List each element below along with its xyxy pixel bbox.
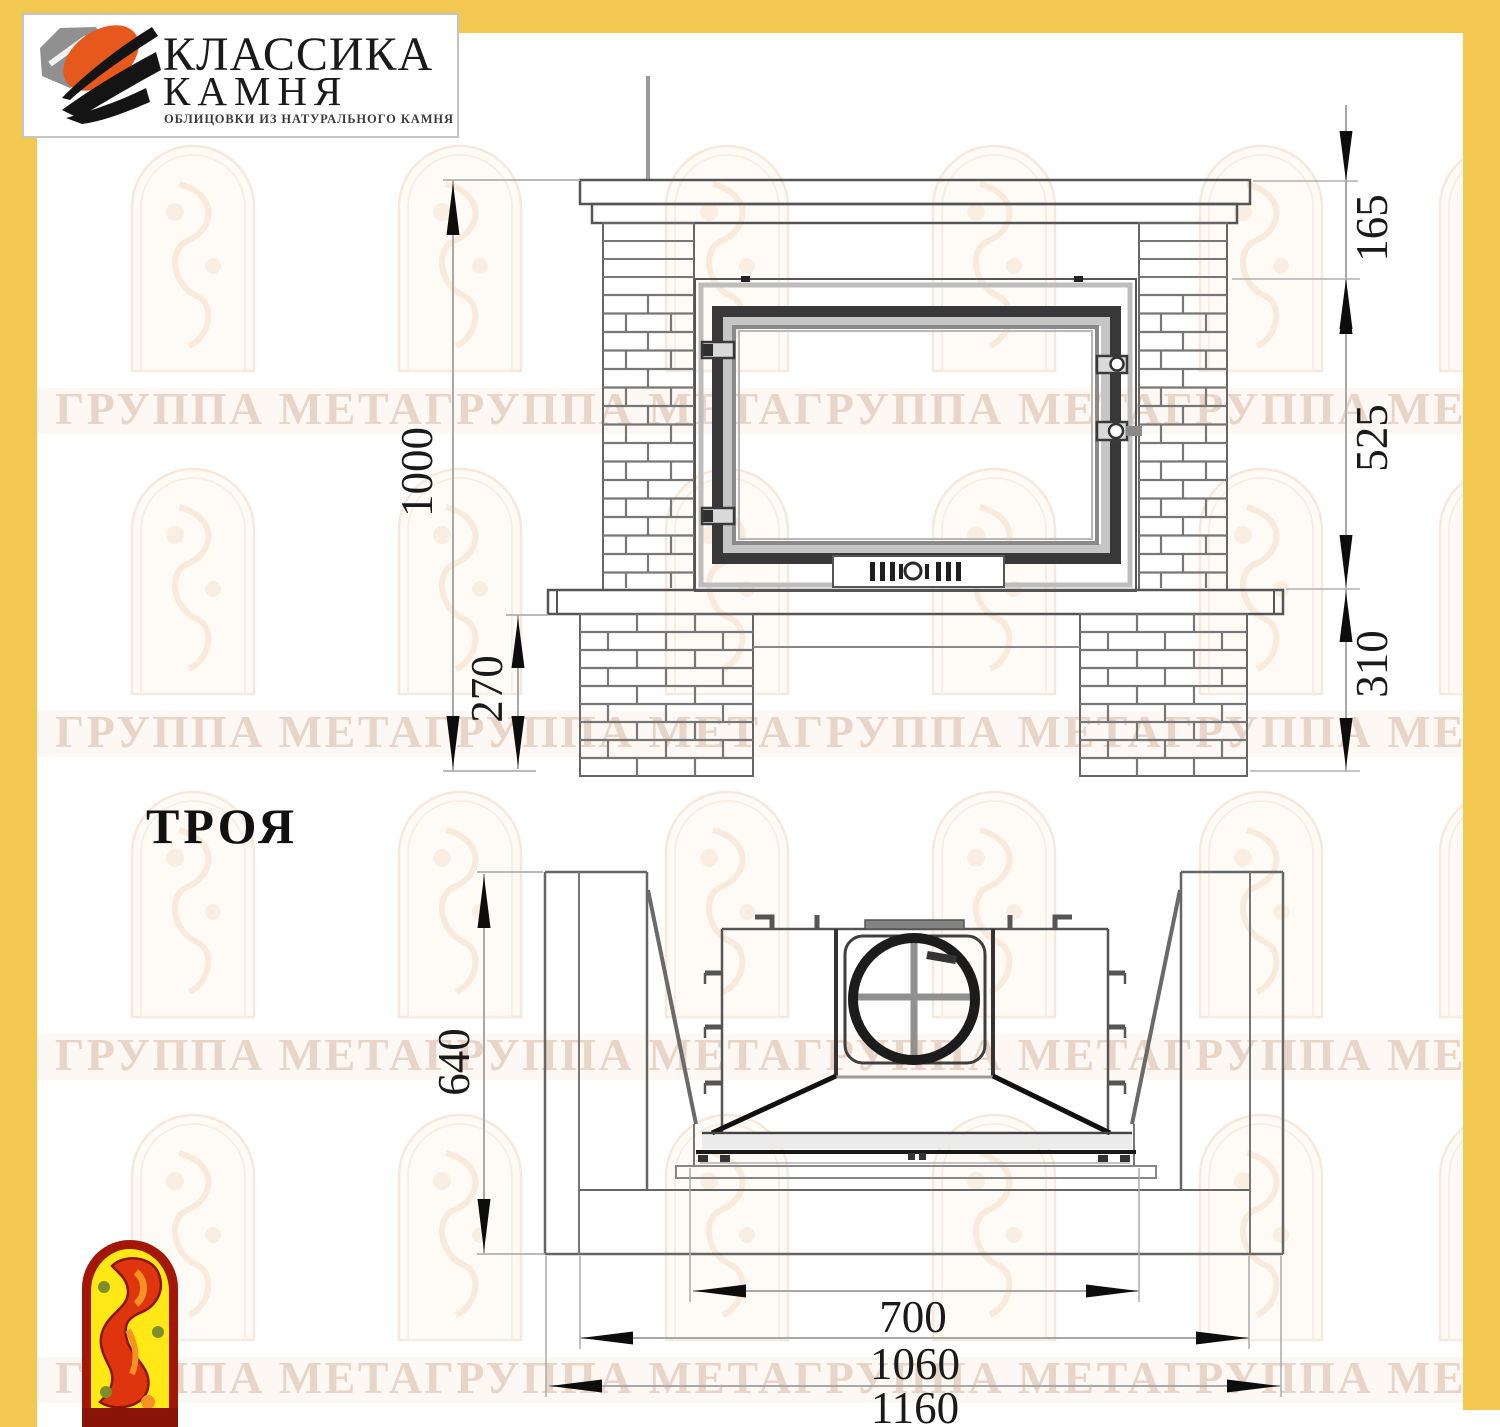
svg-text:525: 525: [1347, 404, 1397, 472]
svg-text:1060: 1060: [870, 1339, 960, 1389]
svg-text:640: 640: [429, 1028, 479, 1096]
svg-text:ТРОЯ: ТРОЯ: [146, 798, 298, 854]
svg-text:165: 165: [1347, 194, 1397, 262]
svg-text:270: 270: [462, 655, 512, 723]
svg-text:ГРУППА МЕТАГРУППА МЕТАГРУППА М: ГРУППА МЕТАГРУППА МЕТАГРУППА МЕТАГРУППА …: [55, 706, 1500, 757]
svg-text:КАМНЯ: КАМНЯ: [163, 68, 348, 114]
svg-text:310: 310: [1347, 630, 1397, 698]
svg-text:ОБЛИЦОВКИ ИЗ НАТУРАЛЬНОГО КАМН: ОБЛИЦОВКИ ИЗ НАТУРАЛЬНОГО КАМНЯ: [164, 112, 454, 126]
svg-text:1000: 1000: [392, 427, 442, 517]
svg-text:ГРУППА МЕТАГРУППА МЕТАГРУППА М: ГРУППА МЕТАГРУППА МЕТАГРУППА МЕТАГРУППА …: [55, 383, 1500, 434]
svg-text:700: 700: [879, 1292, 947, 1342]
svg-text:1160: 1160: [871, 1383, 959, 1427]
svg-text:ГРУППА МЕТАГРУППА МЕТАГРУППА М: ГРУППА МЕТАГРУППА МЕТАГРУППА МЕТАГРУППА …: [55, 1352, 1500, 1403]
